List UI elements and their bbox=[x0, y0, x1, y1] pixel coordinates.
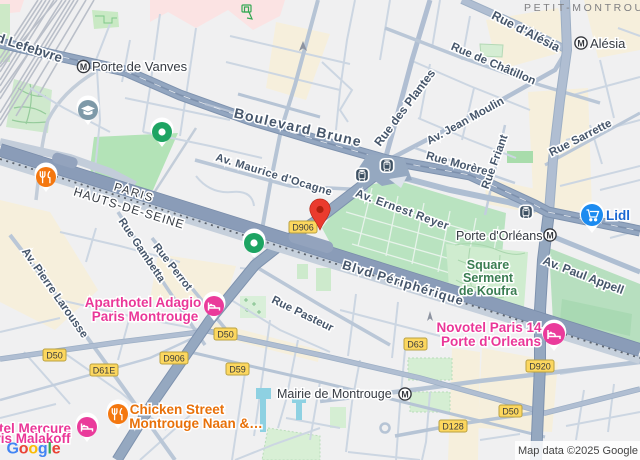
svg-text:Chicken Street: Chicken Street bbox=[130, 402, 225, 417]
svg-text:D128: D128 bbox=[442, 422, 464, 432]
svg-text:D50: D50 bbox=[217, 330, 234, 340]
svg-text:D906: D906 bbox=[163, 354, 185, 364]
svg-text:Lidl: Lidl bbox=[606, 208, 630, 223]
svg-text:PETIT-MONTROU: PETIT-MONTROU bbox=[524, 2, 640, 14]
svg-text:Mairie de Montrouge: Mairie de Montrouge bbox=[277, 387, 392, 401]
svg-text:M: M bbox=[80, 62, 87, 72]
svg-text:Porte d'Orleans: Porte d'Orleans bbox=[441, 334, 541, 349]
svg-text:Porte de Vanves: Porte de Vanves bbox=[92, 59, 188, 74]
svg-text:Google: Google bbox=[7, 441, 61, 458]
svg-text:M: M bbox=[401, 390, 408, 400]
svg-text:D59: D59 bbox=[229, 365, 246, 375]
svg-text:Aparthotel Adagio: Aparthotel Adagio bbox=[85, 295, 202, 310]
svg-text:M: M bbox=[546, 231, 553, 241]
svg-text:D50: D50 bbox=[502, 407, 519, 417]
svg-text:D920: D920 bbox=[529, 362, 551, 372]
svg-text:Serment: Serment bbox=[463, 271, 514, 285]
svg-text:D61E: D61E bbox=[93, 366, 116, 376]
svg-text:D50: D50 bbox=[46, 351, 63, 361]
svg-text:Alésia: Alésia bbox=[590, 36, 626, 51]
svg-text:de Koufra: de Koufra bbox=[459, 284, 518, 298]
svg-text:Paris Montrouge: Paris Montrouge bbox=[92, 309, 199, 324]
svg-text:Map data ©2025 Google: Map data ©2025 Google bbox=[518, 445, 638, 457]
svg-text:Porte d'Orléans: Porte d'Orléans bbox=[456, 229, 542, 243]
svg-text:D63: D63 bbox=[407, 340, 424, 350]
svg-text:Montrouge Naan &…: Montrouge Naan &… bbox=[129, 416, 263, 431]
svg-text:D906: D906 bbox=[292, 223, 314, 233]
svg-text:Novotel Paris 14: Novotel Paris 14 bbox=[436, 320, 542, 335]
svg-text:Square: Square bbox=[467, 258, 509, 272]
svg-text:M: M bbox=[577, 39, 584, 49]
